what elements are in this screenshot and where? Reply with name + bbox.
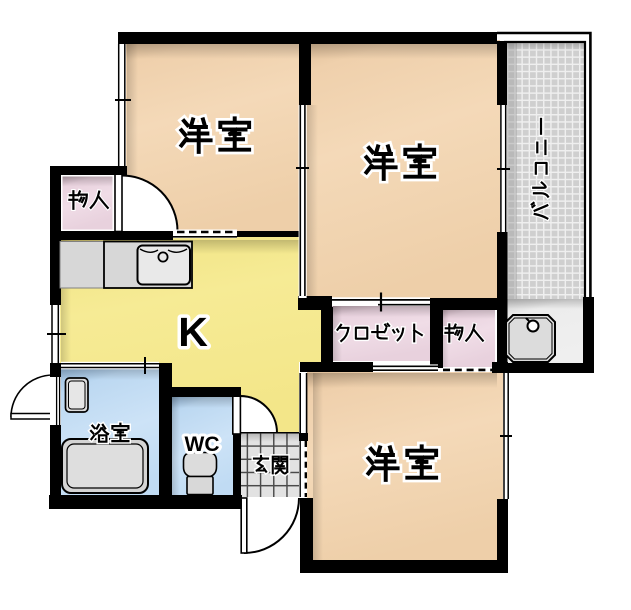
svg-text:WC: WC <box>185 433 220 456</box>
svg-text:K: K <box>178 309 208 355</box>
